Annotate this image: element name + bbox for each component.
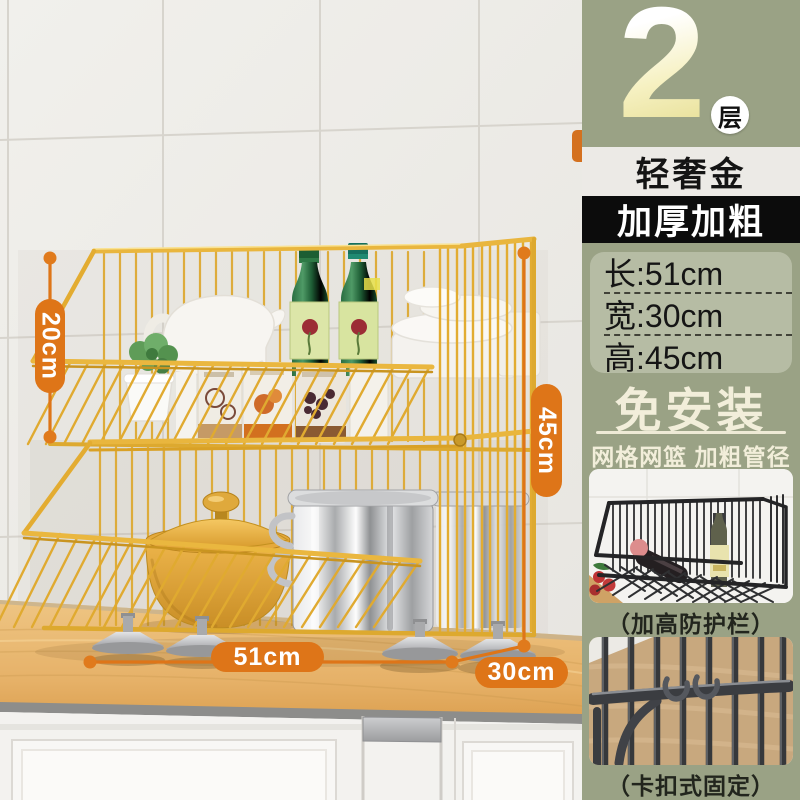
dimension-height: 高:45cm <box>604 336 792 376</box>
dimension-width: 宽:30cm <box>604 294 792 336</box>
color-name-bar: 轻奢金 <box>582 147 800 196</box>
dim-total-height-pill: 45cm <box>531 384 562 497</box>
photo2-caption: （卡扣式固定） <box>582 767 800 801</box>
dimensions-card: 长:51cm 宽:30cm 高:45cm <box>590 252 792 373</box>
detail-photo-guard-rail <box>589 469 793 603</box>
orange-tag-fragment <box>572 130 582 162</box>
dim-length-pill: 51cm <box>211 642 324 672</box>
info-panel: 2 层 轻奢金 加厚加粗 长:51cm 宽:30cm 高:45cm 免安装 网格… <box>582 0 800 800</box>
snap-clip-closeup <box>589 637 793 765</box>
feature-badge-bar: 加厚加粗 <box>582 196 800 243</box>
tier-unit-label: 层 <box>718 98 742 133</box>
dim-upper-height-pill: 20cm <box>35 299 65 393</box>
subheadline: 网格网篮 加粗管径 <box>582 438 800 472</box>
tier-number: 2 <box>618 0 706 142</box>
dim-depth-pill: 30cm <box>475 657 568 688</box>
headline-divider <box>596 431 786 434</box>
cabinet-handle-plate <box>363 717 441 742</box>
black-basket-photo <box>589 469 793 603</box>
photo1-caption: （加高防护栏） <box>582 605 800 639</box>
detail-photo-snap-lock <box>589 637 793 765</box>
kitchen-product-photo: 20cm 45cm 51cm 30cm <box>0 0 582 800</box>
white-cabinets <box>0 702 582 800</box>
dimension-length: 长:51cm <box>604 252 792 294</box>
tier-unit-badge: 层 <box>711 96 749 134</box>
